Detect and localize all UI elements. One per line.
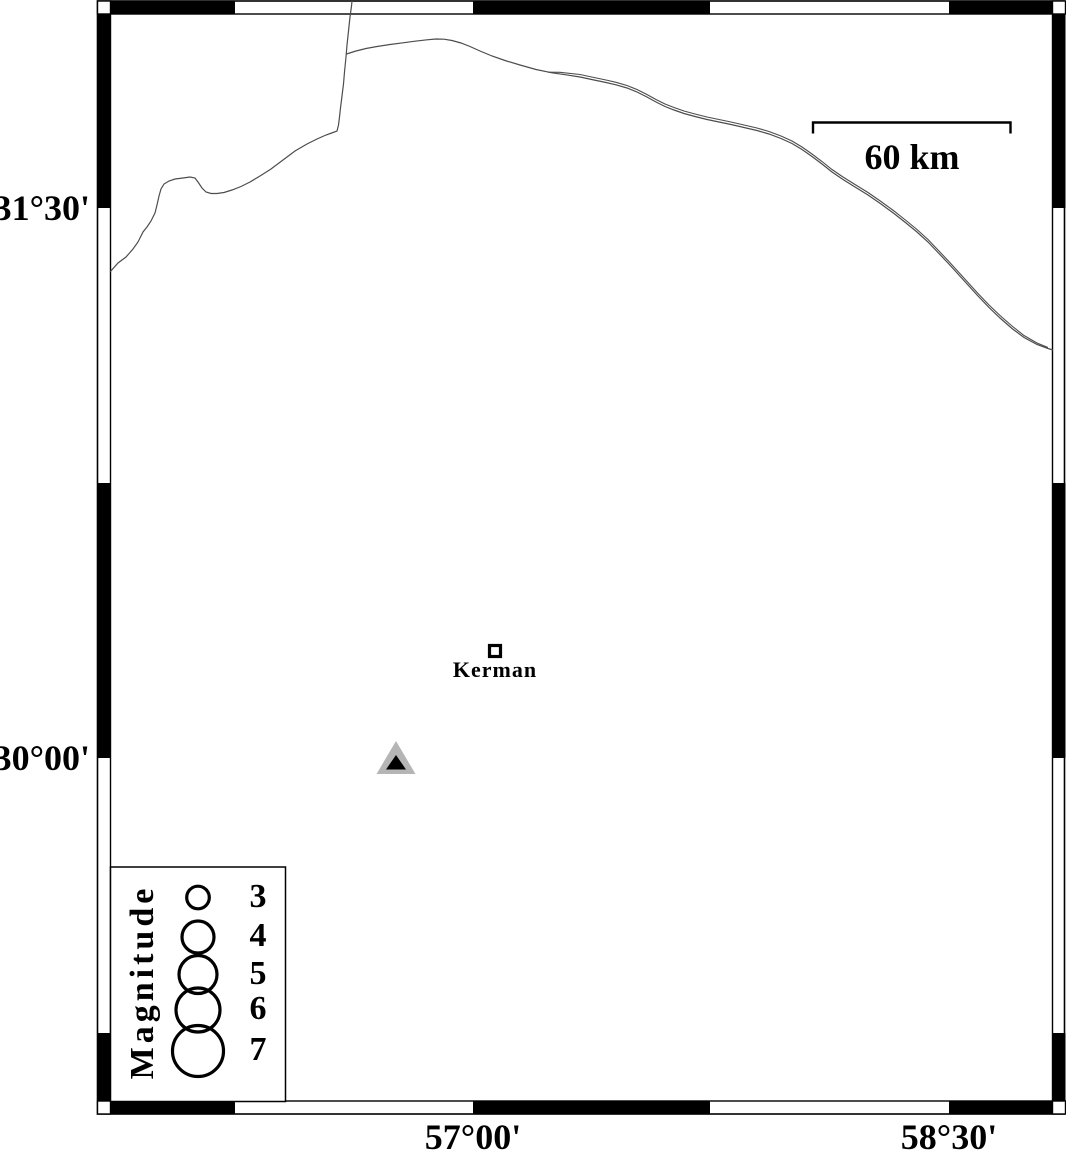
frame-band-segment-right — [1053, 14, 1066, 208]
frame-band-segment-left — [98, 14, 111, 208]
legend-title: Magnitude — [126, 885, 160, 1080]
frame-band-segment-right — [1053, 1033, 1066, 1101]
magnitude-value-7: 7 — [250, 1033, 267, 1067]
frame-band-segment-top — [111, 1, 236, 14]
frame-corner-square — [98, 1101, 111, 1114]
frame-band-segment-left — [98, 483, 111, 758]
lat-label-30-00: 30°00' — [0, 740, 90, 776]
frame-band-segment-top — [949, 1, 1053, 14]
city-label: Kerman — [453, 659, 537, 681]
magnitude-value-4: 4 — [250, 919, 267, 953]
magnitude-value-5: 5 — [250, 957, 267, 991]
frame-band-segment-bottom — [111, 1101, 236, 1114]
lon-label-57-00: 57°00' — [425, 1119, 521, 1151]
lat-label-31-30: 31°30' — [0, 190, 90, 226]
city-marker-square — [490, 646, 501, 657]
frame-band-segment-bottom — [473, 1101, 710, 1114]
frame-band-segment-bottom — [949, 1101, 1053, 1114]
lon-label-58-30: 58°30' — [901, 1119, 997, 1151]
frame-corner-square — [1053, 1101, 1066, 1114]
seismicity-map-figure: 31°30' 30°00' 57°00' 58°30' 60 km Kerman… — [0, 0, 1066, 1151]
frame-corner-square — [1053, 1, 1066, 14]
frame-band-segment-left — [98, 1033, 111, 1101]
scale-bar-label: 60 km — [864, 139, 959, 175]
frame-corner-square — [98, 1, 111, 14]
frame-band-segment-right — [1053, 483, 1066, 758]
magnitude-value-6: 6 — [250, 992, 267, 1026]
frame-band-segment-top — [473, 1, 710, 14]
magnitude-value-3: 3 — [250, 880, 267, 914]
